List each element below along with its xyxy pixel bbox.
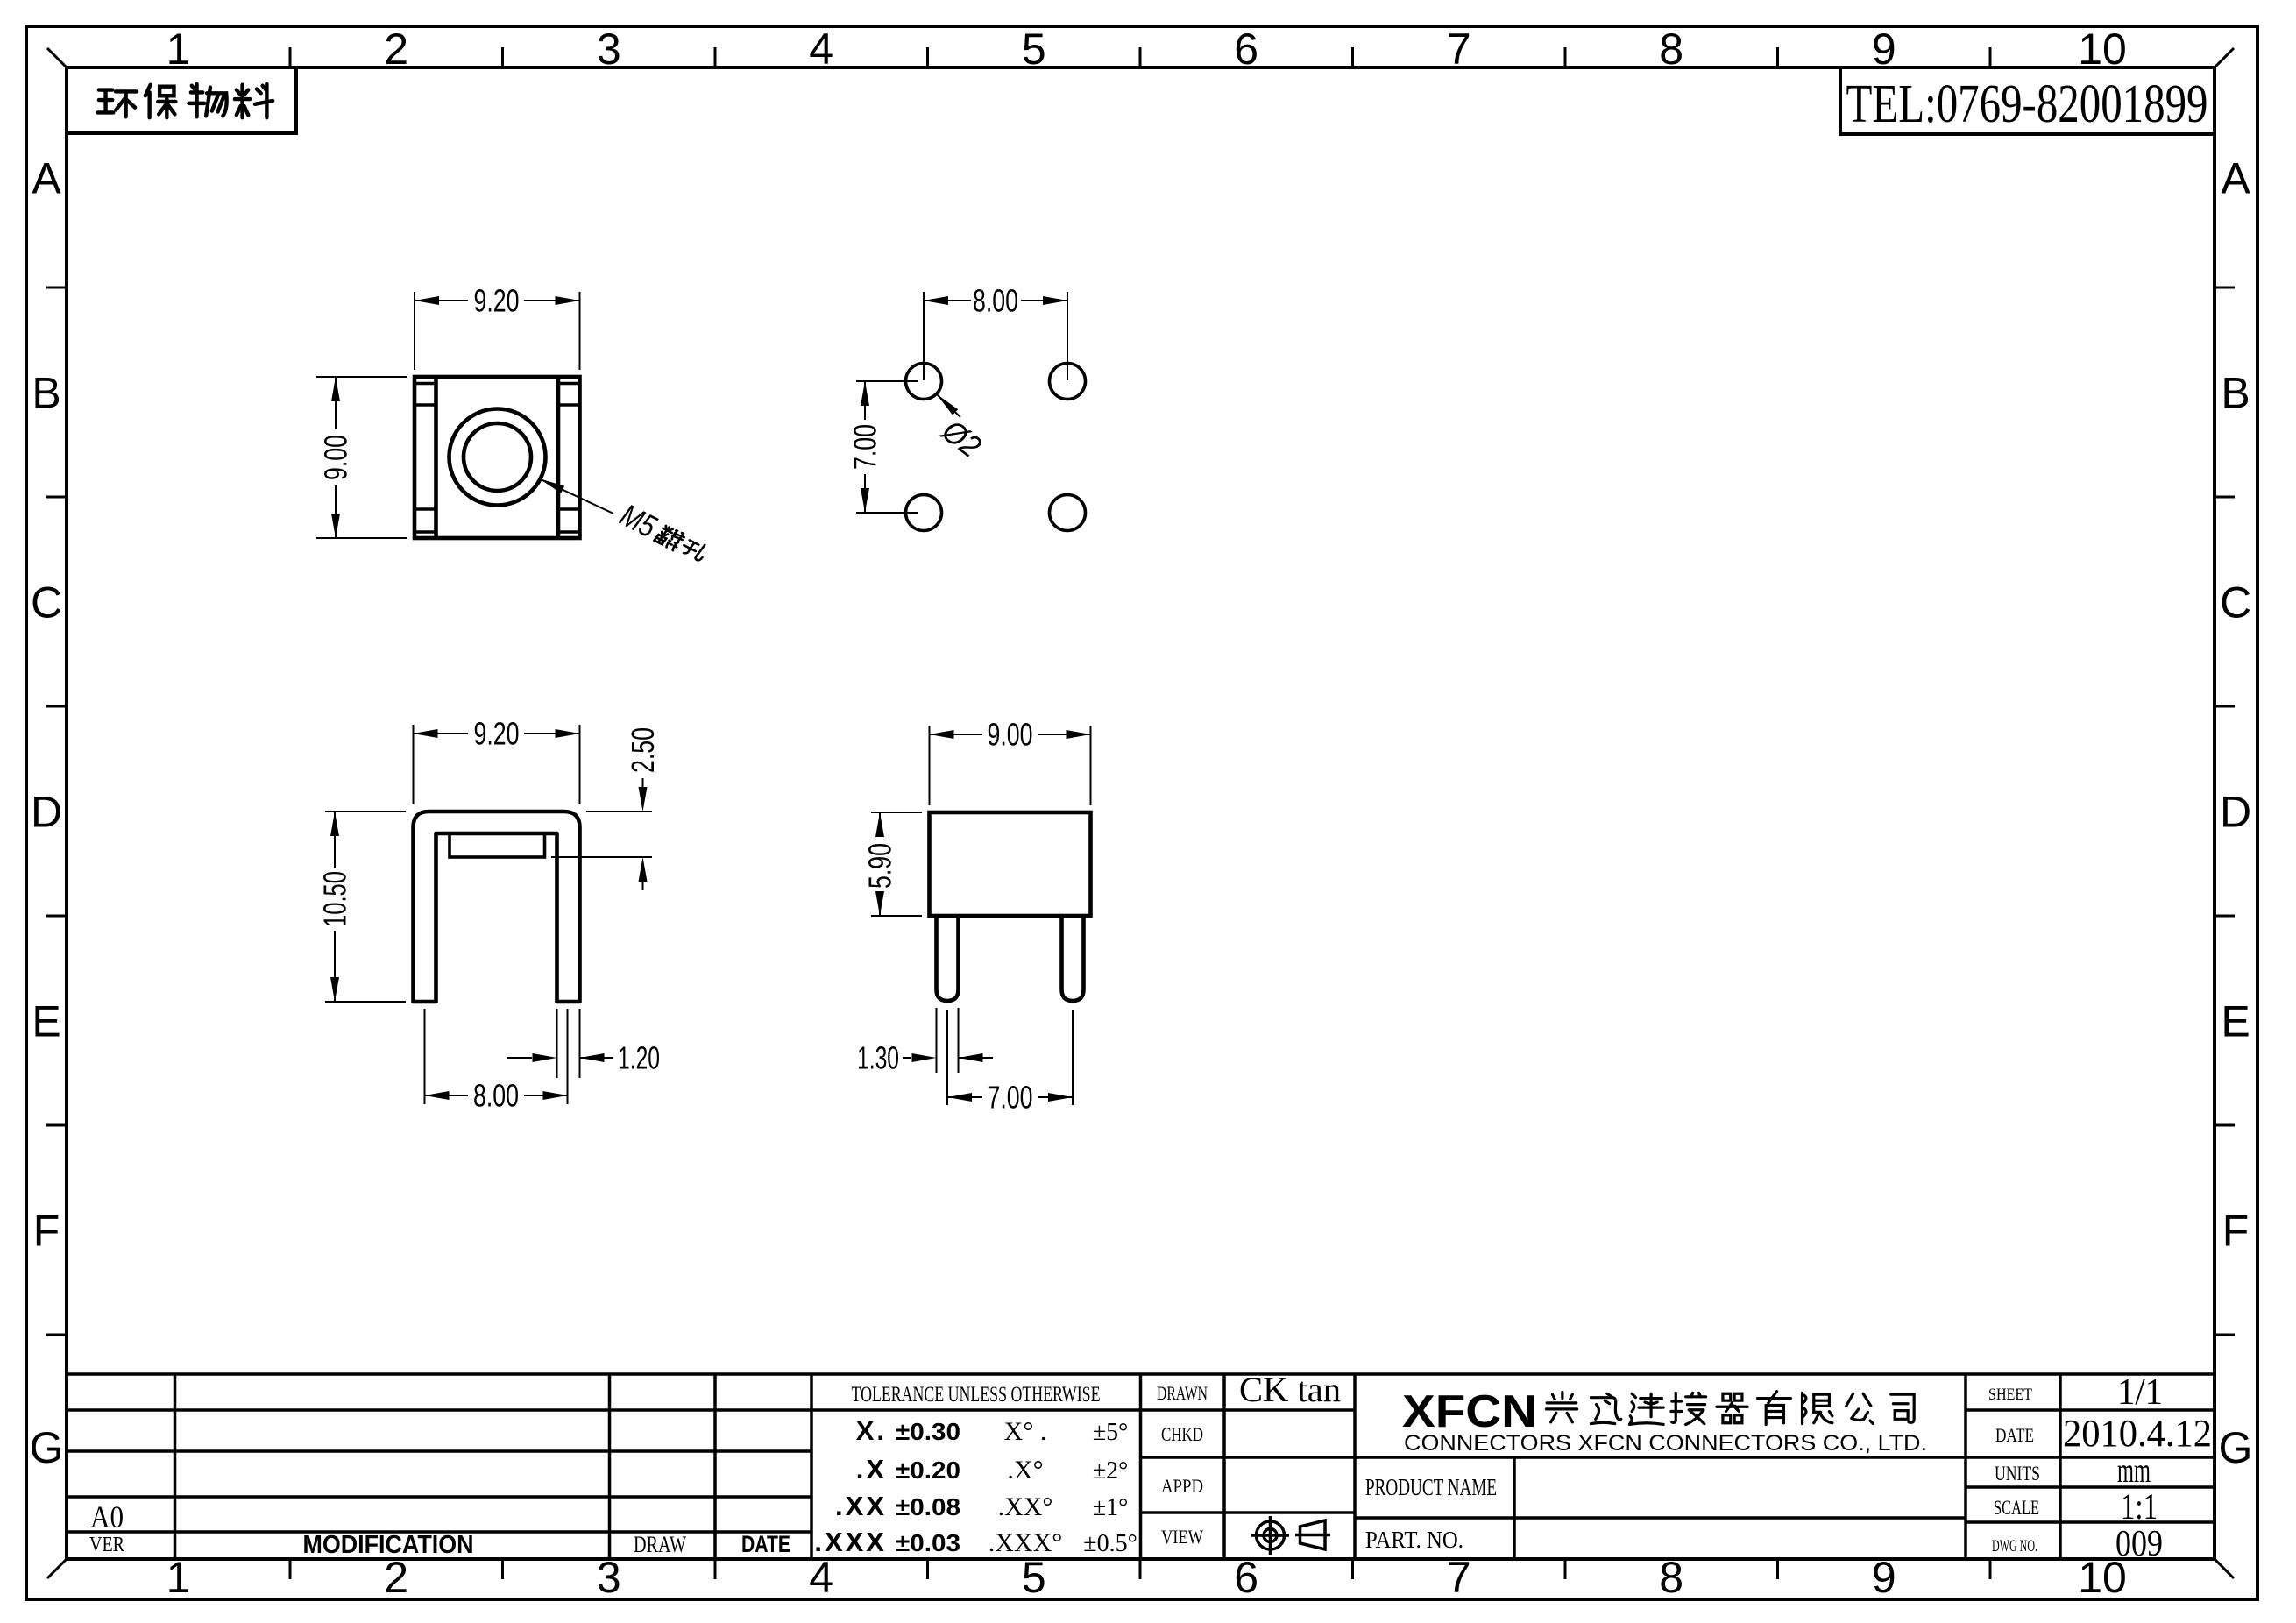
svg-text:±0.30: ±0.30 xyxy=(896,1418,960,1445)
svg-text:DWG NO.: DWG NO. xyxy=(1992,1537,2037,1556)
svg-text:8: 8 xyxy=(1659,1553,1683,1602)
svg-text:1: 1 xyxy=(167,1553,191,1602)
svg-text:±2°: ±2° xyxy=(1093,1457,1129,1485)
svg-text:SHEET: SHEET xyxy=(1988,1386,2032,1404)
svg-text:mm: mm xyxy=(2117,1450,2151,1490)
svg-text:D: D xyxy=(2220,788,2251,837)
svg-text:D: D xyxy=(31,788,62,837)
svg-text:UNITS: UNITS xyxy=(1995,1463,2040,1485)
svg-text:X.: X. xyxy=(856,1415,887,1446)
svg-text:±0.03: ±0.03 xyxy=(896,1529,960,1556)
svg-text:.XX°: .XX° xyxy=(998,1492,1053,1521)
svg-text:F: F xyxy=(2222,1207,2250,1256)
svg-text:C: C xyxy=(31,578,62,627)
svg-text:7.00: 7.00 xyxy=(847,424,883,470)
svg-text:2010.4.12: 2010.4.12 xyxy=(2063,1412,2212,1455)
svg-text:1:1: 1:1 xyxy=(2121,1487,2158,1527)
svg-text:6: 6 xyxy=(1234,25,1258,74)
svg-text:5.90: 5.90 xyxy=(862,843,898,889)
svg-text:2.50: 2.50 xyxy=(625,727,661,773)
svg-text:5: 5 xyxy=(1022,1553,1046,1602)
svg-text:.X°: .X° xyxy=(1007,1456,1043,1485)
svg-text:PART. NO.: PART. NO. xyxy=(1365,1527,1463,1553)
svg-text:7: 7 xyxy=(1447,25,1471,74)
svg-text:9.20: 9.20 xyxy=(474,283,520,319)
svg-text:B: B xyxy=(2221,369,2250,418)
svg-text:G: G xyxy=(30,1423,64,1472)
svg-text:DRAWN: DRAWN xyxy=(1157,1382,1208,1404)
svg-text:XFCN: XFCN xyxy=(1402,1386,1537,1437)
svg-text:TEL:0769-82001899: TEL:0769-82001899 xyxy=(1846,74,2208,134)
svg-text:1/1: 1/1 xyxy=(2117,1372,2163,1413)
svg-text:TOLERANCE UNLESS OTHERWISE: TOLERANCE UNLESS OTHERWISE xyxy=(852,1383,1101,1407)
svg-text:.XXX: .XXX xyxy=(814,1527,887,1557)
svg-text:±0.08: ±0.08 xyxy=(896,1493,960,1520)
svg-text:VER: VER xyxy=(89,1534,124,1556)
svg-text:±1°: ±1° xyxy=(1093,1494,1129,1521)
svg-text:1.20: 1.20 xyxy=(618,1040,660,1076)
svg-text:±0.5°: ±0.5° xyxy=(1083,1530,1137,1557)
svg-text:DATE: DATE xyxy=(1995,1424,2034,1446)
svg-text:A: A xyxy=(32,154,61,203)
svg-text:.X: .X xyxy=(856,1454,887,1485)
svg-text:4: 4 xyxy=(809,25,833,74)
svg-text:9.00: 9.00 xyxy=(988,717,1033,753)
svg-text:PRODUCT NAME: PRODUCT NAME xyxy=(1365,1474,1497,1500)
svg-text:9.00: 9.00 xyxy=(318,435,354,480)
svg-text:.XXX°: .XXX° xyxy=(989,1528,1063,1557)
svg-text:G: G xyxy=(2219,1423,2253,1472)
svg-text:10.50: 10.50 xyxy=(317,871,353,927)
svg-text:4: 4 xyxy=(809,1553,833,1602)
svg-text:A: A xyxy=(2221,154,2250,203)
svg-text:3: 3 xyxy=(597,25,621,74)
svg-text:.XX: .XX xyxy=(835,1491,887,1521)
svg-text:B: B xyxy=(32,369,60,418)
svg-text:VIEW: VIEW xyxy=(1161,1526,1203,1548)
svg-text:6: 6 xyxy=(1234,1553,1258,1602)
svg-text:CK tan: CK tan xyxy=(1239,1370,1341,1409)
svg-text:±0.20: ±0.20 xyxy=(896,1456,960,1484)
svg-text:±5°: ±5° xyxy=(1093,1419,1129,1446)
svg-text:8.00: 8.00 xyxy=(473,1078,519,1114)
svg-text:SCALE: SCALE xyxy=(1994,1497,2039,1519)
svg-text:C: C xyxy=(2220,578,2251,627)
svg-text:2: 2 xyxy=(384,25,408,74)
svg-text:DATE: DATE xyxy=(741,1531,790,1557)
svg-text:1.30: 1.30 xyxy=(857,1040,899,1076)
svg-text:E: E xyxy=(2221,997,2250,1046)
svg-text:X° .: X° . xyxy=(1004,1417,1047,1446)
svg-text:9: 9 xyxy=(1872,1553,1896,1602)
svg-text:APPD: APPD xyxy=(1161,1475,1203,1497)
svg-text:7: 7 xyxy=(1447,1553,1471,1602)
svg-text:MODIFICATION: MODIFICATION xyxy=(303,1531,474,1559)
svg-text:3: 3 xyxy=(597,1553,621,1602)
svg-text:2: 2 xyxy=(384,1553,408,1602)
svg-text:A0: A0 xyxy=(90,1499,124,1534)
svg-text:CONNECTORS XFCN CONNECTORS CO.: CONNECTORS XFCN CONNECTORS CO., LTD. xyxy=(1404,1431,1927,1456)
svg-text:CHKD: CHKD xyxy=(1161,1423,1203,1445)
svg-text:9.20: 9.20 xyxy=(474,716,520,752)
svg-text:7.00: 7.00 xyxy=(988,1080,1033,1116)
svg-text:8.00: 8.00 xyxy=(973,283,1018,319)
svg-text:E: E xyxy=(32,997,60,1046)
svg-text:009: 009 xyxy=(2115,1524,2163,1564)
svg-text:F: F xyxy=(33,1207,60,1256)
svg-text:5: 5 xyxy=(1022,25,1046,74)
svg-text:DRAW: DRAW xyxy=(634,1532,686,1557)
svg-text:8: 8 xyxy=(1659,25,1683,74)
